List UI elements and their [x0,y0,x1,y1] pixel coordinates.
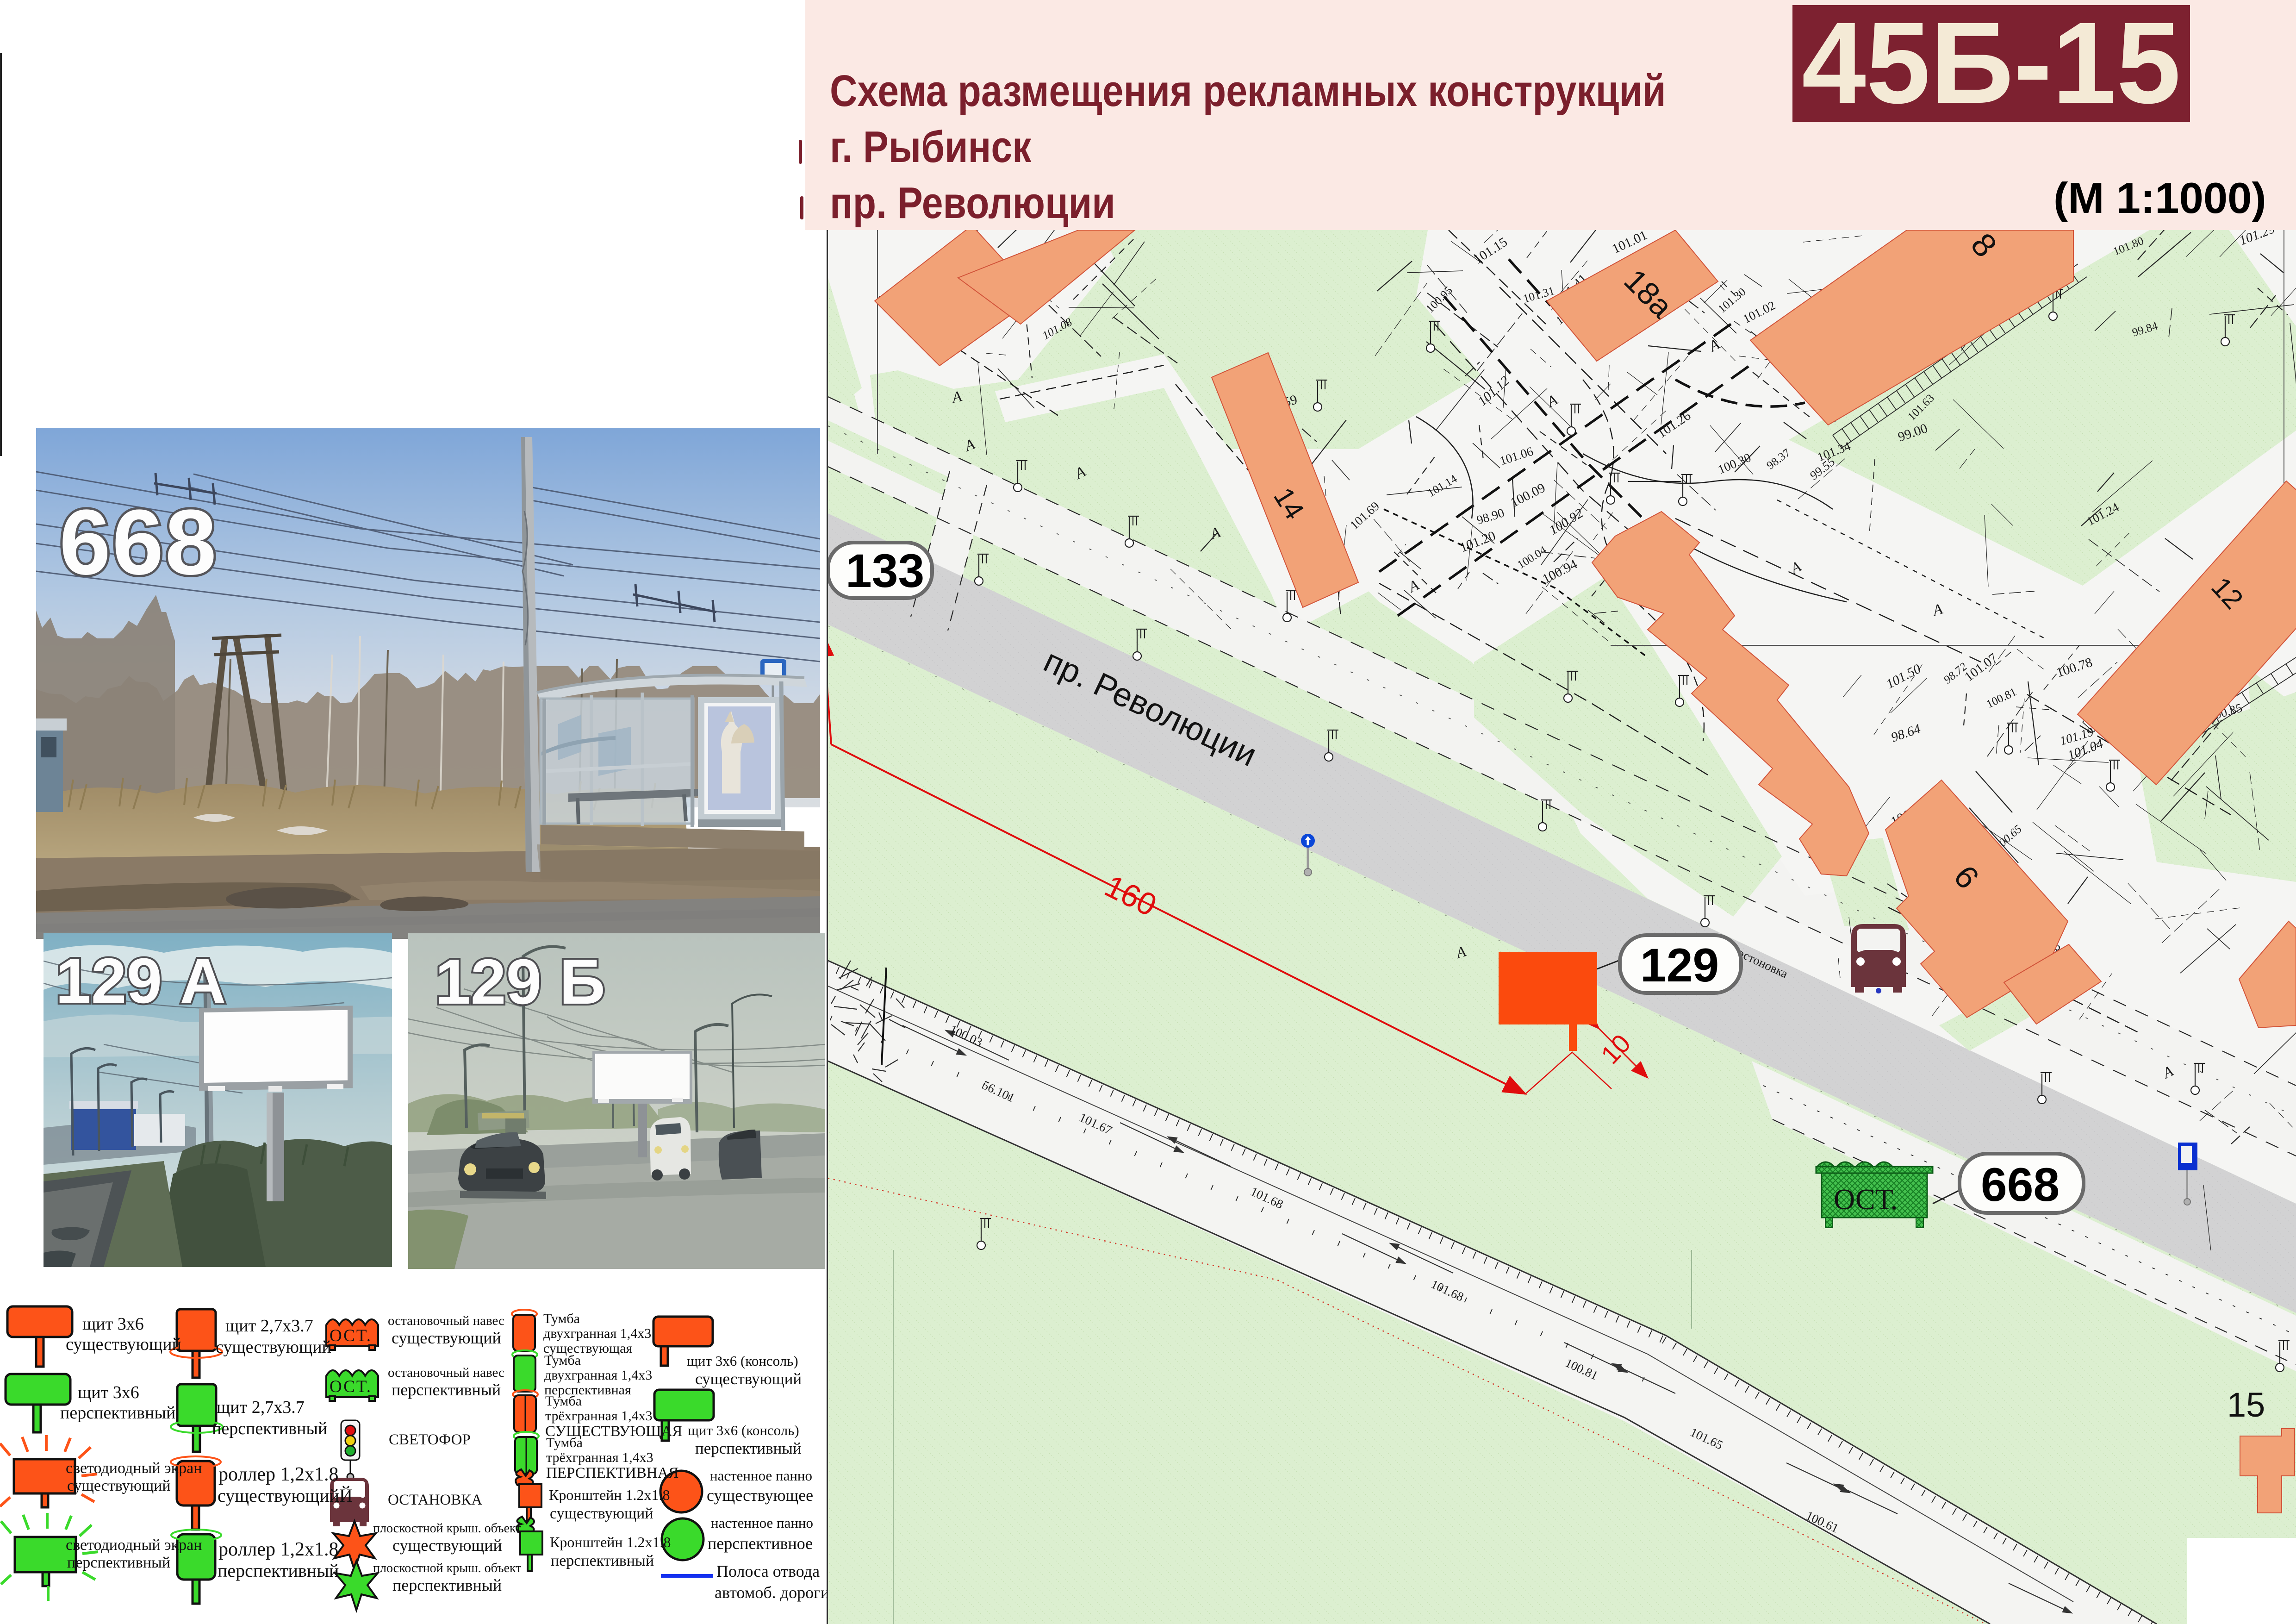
svg-text:Кронштейн 1.2х1.8: Кронштейн 1.2х1.8 [549,1487,670,1503]
svg-text:щит 3х6: щит 3х6 [82,1314,144,1334]
svg-text:668: 668 [1981,1158,2060,1211]
svg-text:щит 2,7х3.7: щит 2,7х3.7 [225,1316,313,1336]
svg-text:существующее: существующее [707,1486,813,1505]
svg-text:существующий: существующий [550,1505,653,1522]
svg-text:двухгранная 1,4х3: двухгранная 1,4х3 [544,1368,652,1383]
svg-text:15: 15 [2227,1386,2265,1424]
svg-text:перспективный: перспективный [67,1554,170,1571]
svg-text:роллер 1,2х1.8: роллер 1,2х1.8 [218,1539,339,1560]
svg-text:129: 129 [1640,939,1719,992]
svg-text:существующий: существующий [392,1329,501,1347]
svg-text:ОСТАНОВКА: ОСТАНОВКА [388,1492,482,1508]
svg-text:Полоса отвода: Полоса отвода [716,1562,820,1580]
svg-text:перспективный: перспективный [392,1380,501,1399]
svg-text:Тумба: Тумба [546,1435,583,1450]
svg-text:перспективный: перспективный [218,1560,339,1581]
svg-text:светодиодный экран: светодиодный экран [66,1460,202,1477]
svg-text:перспективный: перспективный [60,1403,175,1423]
svg-text:плоскостной крыш. объект: плоскостной крыш. объект [373,1521,522,1536]
svg-text:ОСТ.: ОСТ. [330,1326,372,1345]
svg-text:щит 3х6 (консоль): щит 3х6 (консоль) [688,1422,799,1438]
svg-text:СВЕТОФОР: СВЕТОФОР [389,1431,471,1448]
svg-text:щит 3х6 (консоль): щит 3х6 (консоль) [687,1353,798,1369]
svg-text:светодиодный экран: светодиодный экран [66,1537,202,1554]
svg-text:щит 3х6: щит 3х6 [78,1383,139,1402]
svg-text:остановочный навес: остановочный навес [388,1365,504,1380]
svg-text:ПЕРСПЕКТИВНАЯ: ПЕРСПЕКТИВНАЯ [546,1465,678,1481]
svg-text:существующий: существующий [67,1477,171,1494]
svg-text:перспективное: перспективное [708,1534,813,1553]
svg-text:129 А: 129 А [56,945,226,1017]
svg-text:плоскостной крыш. объект: плоскостной крыш. объект [373,1561,522,1575]
svg-text:существующий: существующий [695,1370,802,1388]
svg-text:Кронштейн 1.2х1.8: Кронштейн 1.2х1.8 [550,1534,671,1550]
svg-text:двухгранная 1,4х3: двухгранная 1,4х3 [543,1326,651,1341]
svg-text:трёхгранная 1,4х3: трёхгранная 1,4х3 [546,1450,653,1465]
svg-text:настенное панно: настенное панно [710,1468,812,1484]
svg-text:перспективный: перспективный [392,1576,502,1594]
svg-text:существующий: существующий [66,1335,181,1354]
svg-text:ОСТ.: ОСТ. [1834,1183,1898,1216]
svg-text:существующий: существующий [216,1337,331,1357]
svg-text:трёхгранная 1,4х3: трёхгранная 1,4х3 [545,1408,653,1424]
svg-text:Тумба: Тумба [545,1393,582,1409]
svg-text:129 Б: 129 Б [435,946,605,1018]
svg-text:ОСТ.: ОСТ. [330,1377,372,1396]
svg-text:роллер 1,2х1.8: роллер 1,2х1.8 [218,1464,339,1485]
svg-text:Тумба: Тумба [544,1353,581,1368]
svg-text:перспективный: перспективный [212,1419,327,1438]
svg-text:перспективный: перспективный [695,1439,802,1457]
svg-text:существующий: существующий [392,1536,502,1555]
svg-text:остановочный навес: остановочный навес [388,1313,504,1328]
svg-text:668: 668 [59,491,218,594]
svg-text:автомоб. дороги: автомоб. дороги [715,1583,827,1602]
svg-text:перспективный: перспективный [551,1552,654,1569]
svg-text:Тумба: Тумба [543,1311,580,1326]
svg-text:настенное панно: настенное панно [711,1515,813,1531]
svg-text:существующийЙ: существующийЙ [218,1485,353,1506]
svg-text:133: 133 [846,544,924,597]
svg-text:щит 2,7х3.7: щит 2,7х3.7 [217,1398,305,1417]
